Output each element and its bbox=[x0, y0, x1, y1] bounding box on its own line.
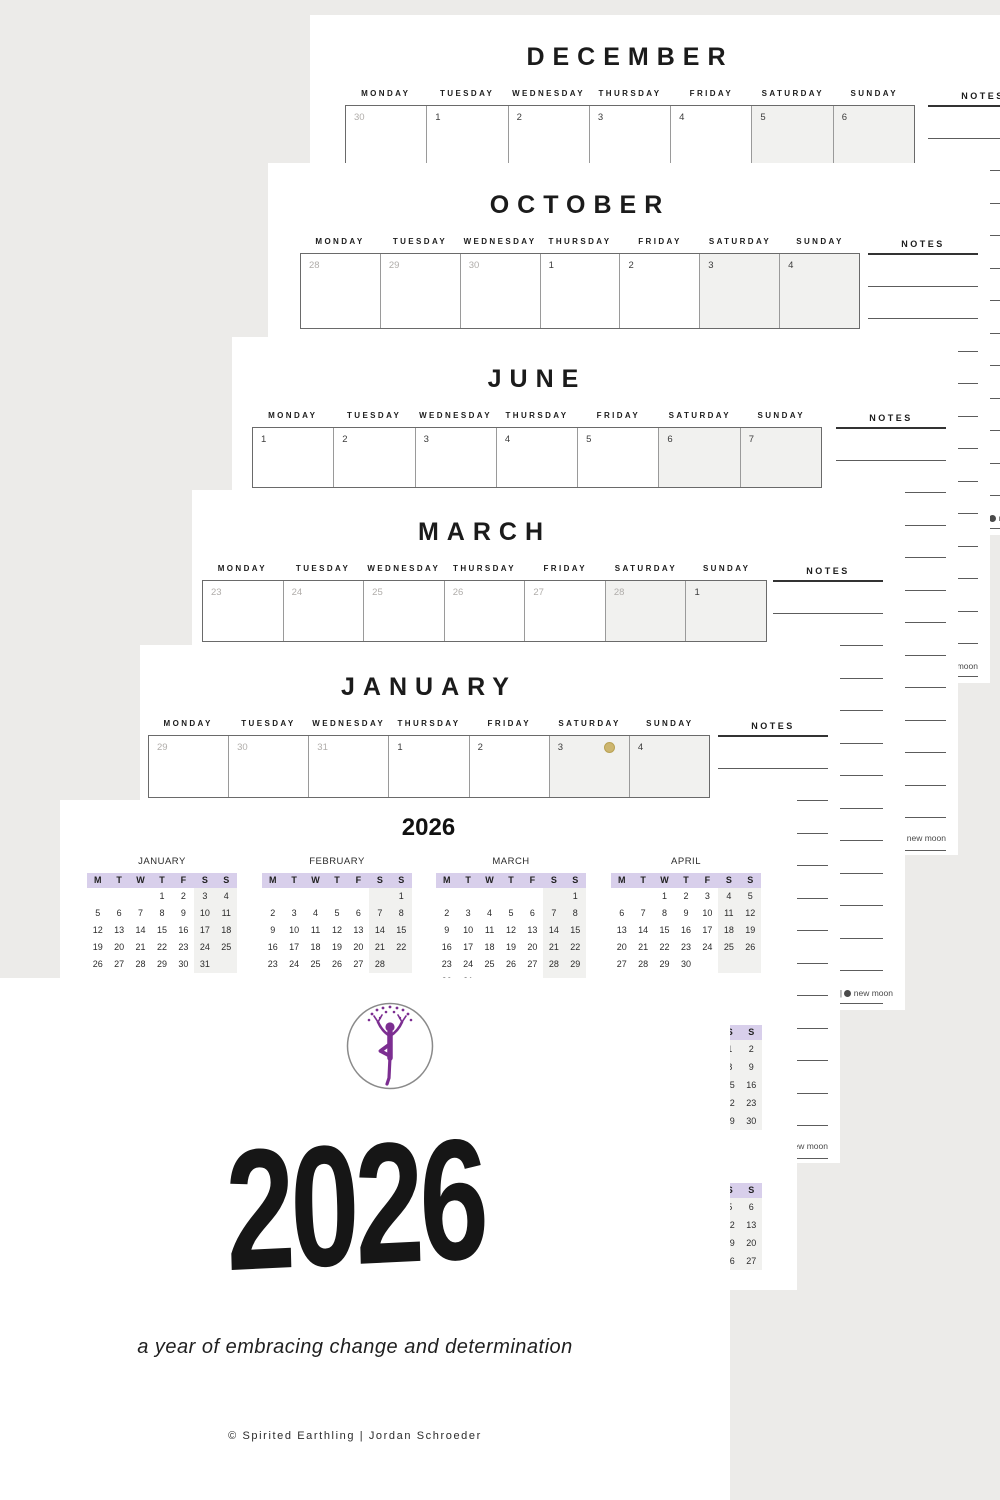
weekday-label: SATURDAY bbox=[700, 237, 780, 246]
notes-line bbox=[718, 735, 828, 737]
mini-date-cell: 5 bbox=[326, 905, 347, 922]
mini-month-name: MARCH bbox=[436, 854, 586, 870]
mini-date-cell: 27 bbox=[108, 956, 129, 973]
mini-day-header-cell: M bbox=[436, 873, 457, 888]
mini-date-cell: 29 bbox=[565, 956, 586, 973]
mini-month-name: APRIL bbox=[611, 854, 761, 870]
mini-date-cell: 9 bbox=[262, 922, 283, 939]
date-number: 1 bbox=[435, 112, 440, 123]
mini-date-cell: 3 bbox=[194, 888, 215, 905]
day-cell: 3 bbox=[700, 254, 780, 328]
mini-date-cell: 5 bbox=[740, 888, 761, 905]
notes-label: NOTES bbox=[718, 721, 828, 731]
mini-day-header-cell: S bbox=[216, 873, 237, 888]
mini-date-cell: 21 bbox=[369, 939, 390, 956]
mini-date-cell: 13 bbox=[348, 922, 369, 939]
weekday-label: THURSDAY bbox=[444, 564, 525, 573]
mini-date-cell: 27 bbox=[522, 956, 543, 973]
day-cell: 2 bbox=[334, 428, 415, 487]
notes-line bbox=[868, 253, 978, 255]
mini-date-cell: 17 bbox=[457, 939, 478, 956]
mini-date-cell: 29 bbox=[151, 956, 172, 973]
mini-date-cell: 1 bbox=[565, 888, 586, 905]
mini-date-cell: 7 bbox=[369, 905, 390, 922]
date-number: 23 bbox=[211, 587, 222, 598]
month-title: JANUARY bbox=[148, 673, 710, 702]
mini-month-february: FEBRUARYMTWTFSS1234567891011121314151617… bbox=[262, 854, 412, 973]
weekday-label: SUNDAY bbox=[780, 237, 860, 246]
date-number: 6 bbox=[842, 112, 847, 123]
weekday-label: SATURDAY bbox=[549, 719, 629, 728]
weekday-label: SUNDAY bbox=[630, 719, 710, 728]
mini-week-row: 12345 bbox=[611, 888, 761, 905]
mini-date-cell: 20 bbox=[348, 939, 369, 956]
month-title: DECEMBER bbox=[345, 43, 915, 72]
mini-date-cell bbox=[479, 888, 500, 905]
day-cell: 3 bbox=[590, 106, 671, 164]
notes-label: NOTES bbox=[868, 239, 978, 249]
mini-date-cell: 25 bbox=[305, 956, 326, 973]
notes-line bbox=[773, 613, 883, 614]
mini-date-cell: 2 bbox=[262, 905, 283, 922]
weekday-label: TUESDAY bbox=[333, 411, 414, 420]
weekday-label: THURSDAY bbox=[589, 89, 670, 98]
mini-date-cell: 20 bbox=[108, 939, 129, 956]
date-number: 1 bbox=[549, 260, 554, 271]
notes-label: NOTES bbox=[928, 91, 1000, 101]
day-cell: 6 bbox=[834, 106, 914, 164]
date-number: 31 bbox=[317, 742, 328, 753]
date-number: 6 bbox=[667, 434, 672, 445]
mini-date-cell: 22 bbox=[565, 939, 586, 956]
mini-date-cell bbox=[740, 956, 761, 973]
mini-date-cell: 13 bbox=[108, 922, 129, 939]
weekday-label: FRIDAY bbox=[578, 411, 659, 420]
mini-date-cell: 28 bbox=[632, 956, 653, 973]
weekday-label: WEDNESDAY bbox=[309, 719, 389, 728]
mini-day-header-cell: T bbox=[108, 873, 129, 888]
new-moon-legend-icon bbox=[989, 515, 996, 522]
mini-day-header-cell: W bbox=[305, 873, 326, 888]
mini-date-cell bbox=[305, 888, 326, 905]
mini-day-header-row: MTWTFSS bbox=[436, 873, 586, 888]
mini-date-cell: 5 bbox=[87, 905, 108, 922]
weekday-label: MONDAY bbox=[148, 719, 228, 728]
weekday-label: SATURDAY bbox=[606, 564, 687, 573]
mini-date-cell: 14 bbox=[543, 922, 564, 939]
day-cell: 25 bbox=[364, 581, 445, 641]
mini-date-cell: 14 bbox=[130, 922, 151, 939]
mini-date-cell: 4 bbox=[479, 905, 500, 922]
date-number: 29 bbox=[389, 260, 400, 271]
mini-day-header-cell: W bbox=[130, 873, 151, 888]
mini-date-cell: 23 bbox=[262, 956, 283, 973]
notes-line bbox=[928, 105, 1000, 107]
weekday-label: THURSDAY bbox=[389, 719, 469, 728]
fragment-date-cell: 30 bbox=[741, 1112, 763, 1130]
fragment-date-cell: 16 bbox=[741, 1076, 763, 1094]
mini-date-cell: 14 bbox=[369, 922, 390, 939]
fragment-date-cell: 2 bbox=[741, 1040, 763, 1058]
day-cell: 27 bbox=[525, 581, 606, 641]
mini-date-cell bbox=[262, 888, 283, 905]
mini-day-header-cell: M bbox=[87, 873, 108, 888]
date-number: 2 bbox=[517, 112, 522, 123]
mini-week-row: 2345678 bbox=[262, 905, 412, 922]
mini-day-header-cell: S bbox=[391, 873, 412, 888]
mini-day-header-row: MTWTFSS bbox=[87, 873, 237, 888]
mini-week-row: 262728293031 bbox=[87, 956, 237, 973]
mini-date-cell bbox=[326, 888, 347, 905]
weekday-label: FRIDAY bbox=[620, 237, 700, 246]
day-cell: 5 bbox=[752, 106, 833, 164]
weekday-label: THURSDAY bbox=[540, 237, 620, 246]
mini-date-cell: 1 bbox=[654, 888, 675, 905]
mini-day-header-cell: F bbox=[697, 873, 718, 888]
weekday-label: TUESDAY bbox=[228, 719, 308, 728]
mini-date-cell: 13 bbox=[522, 922, 543, 939]
date-number: 30 bbox=[469, 260, 480, 271]
mini-date-cell: 11 bbox=[305, 922, 326, 939]
weekday-header-row: MONDAYTUESDAYWEDNESDAYTHURSDAYFRIDAYSATU… bbox=[300, 237, 860, 246]
mini-month-march: MARCHMTWTFSS1234567891011121314151617181… bbox=[436, 854, 586, 990]
weekday-label: SATURDAY bbox=[752, 89, 833, 98]
mini-week-row: 1 bbox=[436, 888, 586, 905]
weekday-label: FRIDAY bbox=[525, 564, 606, 573]
day-cell: 4 bbox=[780, 254, 859, 328]
mini-date-cell: 17 bbox=[697, 922, 718, 939]
mini-date-cell: 24 bbox=[457, 956, 478, 973]
mini-day-header-row: MTWTFSS bbox=[262, 873, 412, 888]
mini-month-april: APRILMTWTFSS1234567891011121314151617181… bbox=[611, 854, 761, 973]
cover-subtitle: a year of embracing change and determina… bbox=[0, 1336, 730, 1359]
mini-date-cell bbox=[369, 888, 390, 905]
day-cell: 3 bbox=[550, 736, 630, 797]
mini-date-cell: 24 bbox=[697, 939, 718, 956]
mini-day-header-cell: T bbox=[457, 873, 478, 888]
mini-date-cell: 4 bbox=[216, 888, 237, 905]
day-cell: 24 bbox=[284, 581, 365, 641]
mini-date-cell: 3 bbox=[457, 905, 478, 922]
mini-date-cell: 4 bbox=[718, 888, 739, 905]
mini-date-cell: 11 bbox=[718, 905, 739, 922]
date-number: 4 bbox=[679, 112, 684, 123]
mini-date-cell bbox=[543, 888, 564, 905]
week-row: 2829301234 bbox=[300, 253, 860, 329]
mini-day-header-cell: T bbox=[151, 873, 172, 888]
date-number: 29 bbox=[157, 742, 168, 753]
new-moon-legend-icon bbox=[844, 990, 851, 997]
mini-week-row: 9101112131415 bbox=[262, 922, 412, 939]
mini-week-row: 23242526272829 bbox=[436, 956, 586, 973]
mini-date-cell: 15 bbox=[391, 922, 412, 939]
day-cell: 31 bbox=[309, 736, 389, 797]
mini-date-cell bbox=[436, 888, 457, 905]
mini-date-cell: 9 bbox=[173, 905, 194, 922]
mini-date-cell: 16 bbox=[436, 939, 457, 956]
day-cell: 29 bbox=[149, 736, 229, 797]
mini-date-cell: 21 bbox=[632, 939, 653, 956]
mini-day-header-cell: T bbox=[283, 873, 304, 888]
mini-date-cell: 22 bbox=[654, 939, 675, 956]
mini-day-header-cell: S bbox=[194, 873, 215, 888]
mini-day-header-cell: S bbox=[543, 873, 564, 888]
date-number: 26 bbox=[453, 587, 464, 598]
date-number: 3 bbox=[708, 260, 713, 271]
notes-line bbox=[718, 768, 828, 769]
weekday-header-row: MONDAYTUESDAYWEDNESDAYTHURSDAYFRIDAYSATU… bbox=[345, 89, 915, 98]
mini-date-cell: 4 bbox=[305, 905, 326, 922]
mini-month-name: FEBRUARY bbox=[262, 854, 412, 870]
month-title: OCTOBER bbox=[300, 191, 860, 220]
mini-date-cell: 18 bbox=[718, 922, 739, 939]
day-cell: 30 bbox=[229, 736, 309, 797]
month-title: MARCH bbox=[202, 518, 767, 547]
mini-date-cell: 15 bbox=[654, 922, 675, 939]
mini-date-cell: 23 bbox=[173, 939, 194, 956]
day-cell: 2 bbox=[509, 106, 590, 164]
weekday-label: FRIDAY bbox=[469, 719, 549, 728]
mini-day-header-cell: M bbox=[611, 873, 632, 888]
cover-year-title: 2026 bbox=[83, 1093, 628, 1317]
mini-date-cell: 17 bbox=[194, 922, 215, 939]
weekday-header-row: MONDAYTUESDAYWEDNESDAYTHURSDAYFRIDAYSATU… bbox=[252, 411, 822, 420]
spirited-earthling-logo bbox=[344, 1000, 436, 1092]
mini-date-cell: 8 bbox=[565, 905, 586, 922]
mini-day-header-cell: S bbox=[718, 873, 739, 888]
date-number: 30 bbox=[354, 112, 365, 123]
mini-date-cell: 26 bbox=[87, 956, 108, 973]
week-row: 2324252627281 bbox=[202, 580, 767, 642]
mini-month-january: JANUARYMTWTFSS12345678910111213141516171… bbox=[87, 854, 237, 973]
mini-date-cell: 15 bbox=[565, 922, 586, 939]
weekday-header-row: MONDAYTUESDAYWEDNESDAYTHURSDAYFRIDAYSATU… bbox=[148, 719, 710, 728]
cover-credit: © Spirited Earthling | Jordan Schroeder bbox=[0, 1430, 730, 1442]
mini-date-cell: 23 bbox=[436, 956, 457, 973]
mini-date-cell: 2 bbox=[675, 888, 696, 905]
day-cell: 1 bbox=[389, 736, 469, 797]
mini-date-cell: 12 bbox=[87, 922, 108, 939]
day-cell: 3 bbox=[416, 428, 497, 487]
notes-line bbox=[868, 286, 978, 287]
weekday-label: MONDAY bbox=[345, 89, 426, 98]
mini-date-cell: 22 bbox=[391, 939, 412, 956]
mini-date-cell: 16 bbox=[173, 922, 194, 939]
mini-date-cell bbox=[697, 956, 718, 973]
mini-week-row: 12131415161718 bbox=[87, 922, 237, 939]
mini-day-header-cell: F bbox=[348, 873, 369, 888]
mini-date-cell: 6 bbox=[108, 905, 129, 922]
day-cell: 23 bbox=[203, 581, 284, 641]
mini-week-row: 27282930 bbox=[611, 956, 761, 973]
date-number: 4 bbox=[788, 260, 793, 271]
mini-date-cell: 14 bbox=[632, 922, 653, 939]
weekday-label: FRIDAY bbox=[671, 89, 752, 98]
mini-date-cell: 15 bbox=[151, 922, 172, 939]
mini-day-header-cell: S bbox=[369, 873, 390, 888]
mini-date-cell: 13 bbox=[611, 922, 632, 939]
mini-date-cell: 31 bbox=[194, 956, 215, 973]
weekday-header-row: MONDAYTUESDAYWEDNESDAYTHURSDAYFRIDAYSATU… bbox=[202, 564, 767, 573]
weekday-label: MONDAY bbox=[252, 411, 333, 420]
mini-date-cell bbox=[718, 956, 739, 973]
notes-line bbox=[836, 460, 946, 461]
mini-month-name: JANUARY bbox=[87, 854, 237, 870]
mini-date-cell: 26 bbox=[326, 956, 347, 973]
mini-date-cell: 20 bbox=[522, 939, 543, 956]
date-number: 25 bbox=[372, 587, 383, 598]
weekday-label: TUESDAY bbox=[283, 564, 364, 573]
mini-date-cell: 19 bbox=[740, 922, 761, 939]
mini-date-cell: 7 bbox=[130, 905, 151, 922]
mini-week-row: 232425262728 bbox=[262, 956, 412, 973]
mini-date-cell: 6 bbox=[348, 905, 369, 922]
date-number: 2 bbox=[342, 434, 347, 445]
mini-date-cell: 3 bbox=[697, 888, 718, 905]
mini-date-cell bbox=[457, 888, 478, 905]
mini-date-cell: 1 bbox=[391, 888, 412, 905]
mini-day-header-cell: F bbox=[173, 873, 194, 888]
date-number: 30 bbox=[237, 742, 248, 753]
date-number: 2 bbox=[478, 742, 483, 753]
mini-date-cell: 20 bbox=[611, 939, 632, 956]
week-row: 1234567 bbox=[252, 427, 822, 488]
weekday-label: WEDNESDAY bbox=[460, 237, 540, 246]
weekday-label: MONDAY bbox=[202, 564, 283, 573]
mini-date-cell: 30 bbox=[173, 956, 194, 973]
mini-date-cell: 10 bbox=[697, 905, 718, 922]
mini-week-row: 6789101112 bbox=[611, 905, 761, 922]
date-number: 4 bbox=[638, 742, 643, 753]
day-cell: 4 bbox=[630, 736, 709, 797]
mini-date-cell: 28 bbox=[543, 956, 564, 973]
mini-week-row: 16171819202122 bbox=[262, 939, 412, 956]
mini-date-cell bbox=[283, 888, 304, 905]
mini-date-cell: 18 bbox=[216, 922, 237, 939]
mini-date-cell: 29 bbox=[654, 956, 675, 973]
mini-week-row: 20212223242526 bbox=[611, 939, 761, 956]
mini-date-cell: 7 bbox=[543, 905, 564, 922]
mini-date-cell: 19 bbox=[500, 939, 521, 956]
date-number: 7 bbox=[749, 434, 754, 445]
mini-week-row: 19202122232425 bbox=[87, 939, 237, 956]
mini-date-cell bbox=[611, 888, 632, 905]
mini-day-header-cell: T bbox=[326, 873, 347, 888]
mini-date-cell: 5 bbox=[500, 905, 521, 922]
mini-date-cell: 21 bbox=[130, 939, 151, 956]
day-cell: 2 bbox=[620, 254, 700, 328]
day-cell: 4 bbox=[671, 106, 752, 164]
mini-date-cell bbox=[216, 956, 237, 973]
mini-date-cell: 19 bbox=[326, 939, 347, 956]
mini-date-cell: 23 bbox=[675, 939, 696, 956]
weekday-label: THURSDAY bbox=[496, 411, 577, 420]
mini-date-cell bbox=[108, 888, 129, 905]
mini-date-cell: 1 bbox=[151, 888, 172, 905]
day-cell: 30 bbox=[346, 106, 427, 164]
mini-date-cell bbox=[348, 888, 369, 905]
mini-date-cell bbox=[130, 888, 151, 905]
full-moon-icon bbox=[604, 742, 615, 753]
date-number: 3 bbox=[598, 112, 603, 123]
day-cell: 30 bbox=[461, 254, 541, 328]
mini-date-cell: 3 bbox=[283, 905, 304, 922]
mini-date-cell: 24 bbox=[194, 939, 215, 956]
mini-date-cell bbox=[87, 888, 108, 905]
mini-date-cell: 2 bbox=[436, 905, 457, 922]
mini-day-header-cell: S bbox=[740, 873, 761, 888]
mini-date-cell: 12 bbox=[500, 922, 521, 939]
mini-date-cell: 8 bbox=[654, 905, 675, 922]
fragment-date-cell: 27 bbox=[741, 1252, 763, 1270]
weekday-label: SUNDAY bbox=[686, 564, 767, 573]
date-number: 4 bbox=[505, 434, 510, 445]
mini-date-cell: 2 bbox=[173, 888, 194, 905]
day-cell: 5 bbox=[578, 428, 659, 487]
fragment-header-cell: S bbox=[741, 1025, 763, 1040]
day-cell: 1 bbox=[253, 428, 334, 487]
mini-date-cell: 19 bbox=[87, 939, 108, 956]
fragment-date-cell: 20 bbox=[741, 1234, 763, 1252]
mini-week-row: 567891011 bbox=[87, 905, 237, 922]
notes-label: NOTES bbox=[773, 566, 883, 576]
mini-date-cell: 7 bbox=[632, 905, 653, 922]
day-cell: 6 bbox=[659, 428, 740, 487]
day-cell: 4 bbox=[497, 428, 578, 487]
yoga-tree-logo-icon bbox=[344, 1000, 436, 1092]
year-title: 2026 bbox=[60, 814, 797, 842]
mini-week-row: 16171819202122 bbox=[436, 939, 586, 956]
day-cell: 1 bbox=[686, 581, 766, 641]
weekday-label: TUESDAY bbox=[380, 237, 460, 246]
weekday-label: SUNDAY bbox=[834, 89, 915, 98]
weekday-label: WEDNESDAY bbox=[415, 411, 496, 420]
mini-date-cell: 27 bbox=[611, 956, 632, 973]
mini-date-cell: 27 bbox=[348, 956, 369, 973]
mini-date-cell: 18 bbox=[305, 939, 326, 956]
mini-date-cell bbox=[500, 888, 521, 905]
date-number: 1 bbox=[694, 587, 699, 598]
date-number: 1 bbox=[397, 742, 402, 753]
mini-date-cell: 10 bbox=[457, 922, 478, 939]
fragment-date-cell: 9 bbox=[741, 1058, 763, 1076]
mini-date-cell: 30 bbox=[675, 956, 696, 973]
month-title: JUNE bbox=[252, 365, 822, 394]
mini-day-header-cell: T bbox=[500, 873, 521, 888]
fragment-date-cell: 6 bbox=[741, 1198, 763, 1216]
day-cell: 28 bbox=[301, 254, 381, 328]
mini-date-cell: 16 bbox=[262, 939, 283, 956]
day-cell: 29 bbox=[381, 254, 461, 328]
mini-day-header-cell: W bbox=[654, 873, 675, 888]
mini-date-cell: 8 bbox=[151, 905, 172, 922]
notes-line bbox=[868, 318, 978, 319]
mini-date-cell: 10 bbox=[194, 905, 215, 922]
mini-week-row: 2345678 bbox=[436, 905, 586, 922]
fragment-date-cell: 23 bbox=[741, 1094, 763, 1112]
day-cell: 28 bbox=[606, 581, 687, 641]
mini-date-cell: 6 bbox=[522, 905, 543, 922]
mini-date-cell: 6 bbox=[611, 905, 632, 922]
mini-date-cell: 11 bbox=[216, 905, 237, 922]
mini-day-header-cell: F bbox=[522, 873, 543, 888]
day-cell: 7 bbox=[741, 428, 821, 487]
date-number: 2 bbox=[628, 260, 633, 271]
mini-date-cell bbox=[632, 888, 653, 905]
date-number: 28 bbox=[309, 260, 320, 271]
week-row: 30123456 bbox=[345, 105, 915, 165]
mini-date-cell: 9 bbox=[675, 905, 696, 922]
